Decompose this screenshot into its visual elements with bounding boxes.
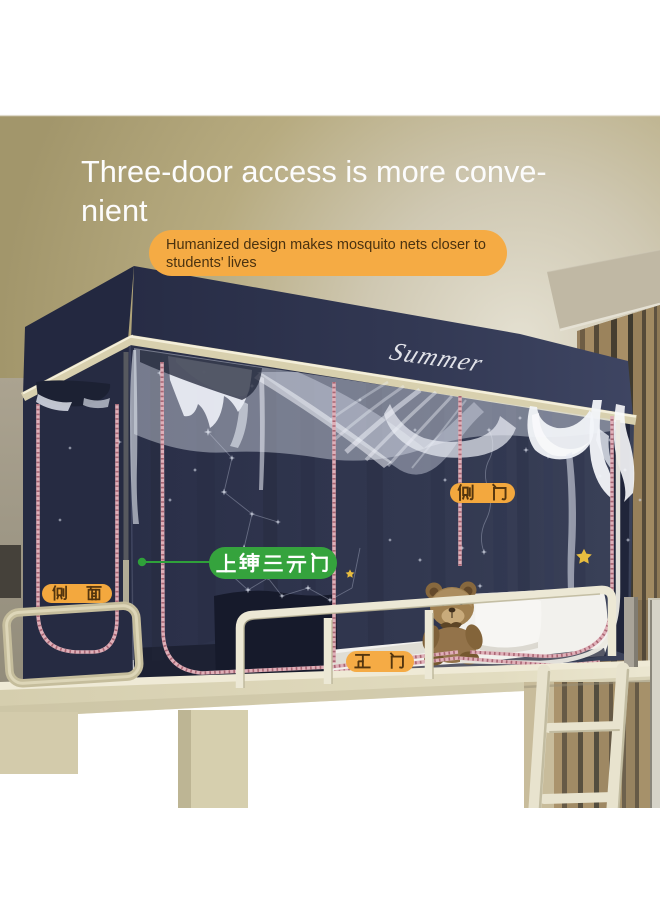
svg-text:students' lives: students' lives	[166, 255, 257, 271]
svg-text:Three-door access is more conv: Three-door access is more conve-	[81, 154, 547, 189]
svg-text:nient: nient	[81, 193, 148, 228]
svg-text:Humanized design makes mosquit: Humanized design makes mosquito nets clo…	[166, 237, 486, 253]
